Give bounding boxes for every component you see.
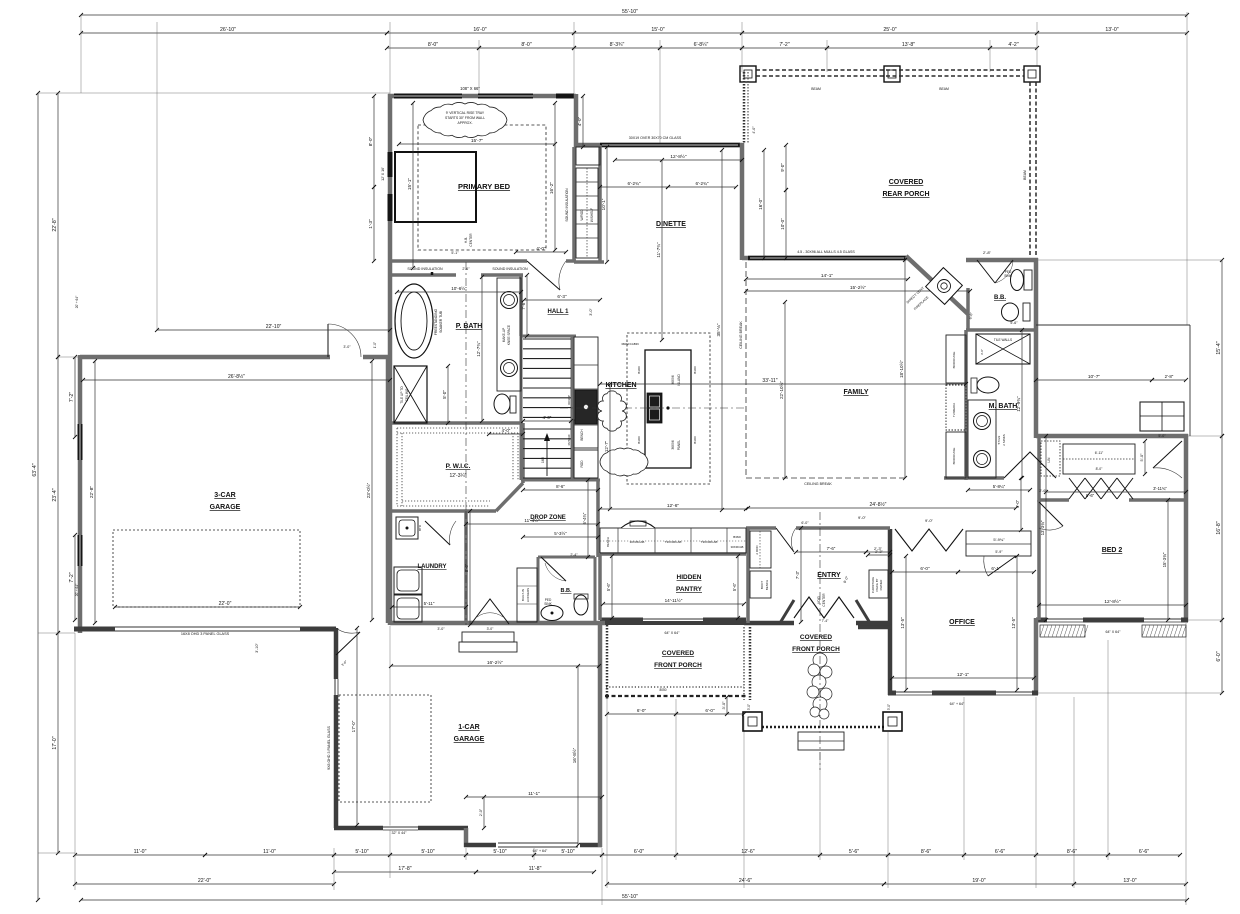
svg-text:PANTRY: PANTRY <box>676 586 703 593</box>
svg-text:6'-0": 6'-0" <box>705 708 715 713</box>
svg-text:10'-0": 10'-0" <box>780 218 785 230</box>
svg-text:33'-11": 33'-11" <box>762 378 777 384</box>
svg-text:4'-0": 4'-0" <box>536 246 546 252</box>
svg-text:64" + 64": 64" + 64" <box>950 702 965 706</box>
svg-text:TILE UP TO: TILE UP TO <box>400 386 404 404</box>
svg-text:VOID: VOID <box>817 595 821 603</box>
svg-text:5'-10": 5'-10" <box>561 849 574 855</box>
svg-text:5'-3½": 5'-3½" <box>554 531 567 536</box>
svg-text:15'-3¾": 15'-3¾" <box>1162 552 1167 567</box>
svg-text:8'-6": 8'-6" <box>1067 849 1077 855</box>
svg-text:24'-8½": 24'-8½" <box>870 501 887 508</box>
svg-text:8'-3¾": 8'-3¾" <box>610 42 625 48</box>
svg-text:3'-0": 3'-0" <box>343 345 351 349</box>
svg-text:3'-0": 3'-0" <box>721 701 726 710</box>
svg-text:W/ROD: W/ROD <box>580 209 584 221</box>
svg-text:3'-0": 3'-0" <box>887 704 891 710</box>
svg-text:CEILING: CEILING <box>405 388 409 401</box>
svg-text:15'-4": 15'-4" <box>1216 341 1222 354</box>
svg-text:12'-3¼": 12'-3¼" <box>450 473 467 479</box>
svg-text:9'-0": 9'-0" <box>780 163 785 172</box>
svg-text:PRIMARY BED: PRIMARY BED <box>458 182 511 191</box>
svg-text:4'-0": 4'-0" <box>502 428 511 433</box>
svg-text:8'-0": 8'-0" <box>428 42 438 48</box>
svg-text:4'-2": 4'-2" <box>1008 42 1018 48</box>
svg-text:12'-8½": 12'-8½" <box>1104 598 1121 605</box>
svg-text:26'-8½": 26'-8½" <box>228 373 245 380</box>
svg-text:17'-8": 17'-8" <box>398 866 411 872</box>
svg-text:ROD: ROD <box>580 460 584 468</box>
svg-text:12' X 16': 12' X 16' <box>381 167 385 181</box>
svg-text:4'-0": 4'-0" <box>752 126 756 134</box>
svg-text:8050: 8050 <box>659 688 666 692</box>
svg-text:16'-2": 16'-2" <box>549 182 555 195</box>
svg-text:SOUND INSULATION: SOUND INSULATION <box>492 267 528 271</box>
svg-text:23'-4": 23'-4" <box>52 488 58 501</box>
svg-text:23'-0½": 23'-0½" <box>365 482 371 498</box>
svg-text:6'-6": 6'-6" <box>995 849 1005 855</box>
svg-text:2 SINKS: 2 SINKS <box>1002 434 1006 446</box>
svg-text:6'-0": 6'-0" <box>1216 651 1222 661</box>
svg-text:8'-6": 8'-6" <box>921 849 931 855</box>
svg-text:10'-7": 10'-7" <box>1088 374 1101 380</box>
svg-text:6'-6": 6'-6" <box>1139 849 1149 855</box>
svg-text:20' + 64": 20' + 64" <box>75 296 79 308</box>
svg-text:6'-4¾": 6'-4¾" <box>582 512 587 524</box>
svg-text:64" X 64": 64" X 64" <box>665 631 681 635</box>
svg-text:SOAKER TUB: SOAKER TUB <box>439 310 443 333</box>
svg-text:64" X 64": 64" X 64" <box>1106 630 1122 634</box>
svg-text:B30D: B30D <box>693 365 697 373</box>
svg-text:FRONT PORCH: FRONT PORCH <box>792 646 840 653</box>
svg-text:22'-10": 22'-10" <box>266 324 282 330</box>
svg-text:FRONT PORCH: FRONT PORCH <box>654 662 702 669</box>
svg-text:OWNER: OWNER <box>879 580 883 591</box>
svg-text:5'-10": 5'-10" <box>421 849 434 855</box>
svg-text:17'-0": 17'-0" <box>52 736 58 749</box>
svg-text:24'-6": 24'-6" <box>739 878 752 884</box>
svg-text:M. BATH: M. BATH <box>989 403 1018 410</box>
svg-text:3-CAR: 3-CAR <box>214 492 235 499</box>
svg-text:16R: 16R <box>541 456 545 463</box>
svg-text:GARAGE: GARAGE <box>454 736 485 743</box>
svg-text:B30D: B30D <box>637 365 641 373</box>
svg-text:BOOKCASE: BOOKCASE <box>952 448 956 465</box>
svg-text:T36X36CAB: T36X36CAB <box>665 540 682 544</box>
svg-text:9X8 OHD 3 PANEL GLASS: 9X8 OHD 3 PANEL GLASS <box>327 726 331 770</box>
svg-text:3'-0": 3'-0" <box>980 349 984 355</box>
svg-text:14'-11½": 14'-11½" <box>665 597 683 603</box>
svg-text:11'-8": 11'-8" <box>529 866 542 872</box>
svg-text:1'-3": 1'-3" <box>368 219 374 229</box>
svg-text:25'-0": 25'-0" <box>883 27 896 33</box>
svg-text:8'-6": 8'-6" <box>464 563 469 572</box>
svg-text:RV6030: RV6030 <box>567 434 571 445</box>
svg-text:1'-0": 1'-0" <box>373 342 377 348</box>
svg-text:15'-7": 15'-7" <box>471 138 484 144</box>
svg-text:B30D: B30D <box>693 435 697 443</box>
svg-text:64" + 64": 64" + 64" <box>533 849 548 853</box>
svg-text:6'-0": 6'-0" <box>634 849 644 855</box>
svg-text:5'-0": 5'-0" <box>1139 453 1144 462</box>
svg-text:3'-11¾": 3'-11¾" <box>1153 486 1167 491</box>
svg-text:55'-10": 55'-10" <box>622 894 638 900</box>
svg-text:GARAGE: GARAGE <box>210 504 241 511</box>
svg-text:STARTS 30" FROM WALL: STARTS 30" FROM WALL <box>445 116 485 120</box>
svg-text:108" X 66": 108" X 66" <box>460 86 480 91</box>
svg-text:6'-3": 6'-3" <box>557 294 567 299</box>
svg-text:6'-2¾": 6'-2¾" <box>696 181 709 186</box>
svg-text:BEAM: BEAM <box>939 87 949 91</box>
svg-text:APPROX.: APPROX. <box>457 121 472 125</box>
svg-text:7'-2": 7'-2" <box>69 572 75 582</box>
svg-text:55'-10": 55'-10" <box>622 9 638 15</box>
svg-text:13'-5": 13'-5" <box>900 617 905 629</box>
svg-text:BENCH: BENCH <box>606 537 610 547</box>
svg-text:10'-6½": 10'-6½" <box>451 285 467 291</box>
svg-text:6'-8¼": 6'-8¼" <box>694 42 709 48</box>
svg-text:BTD: BTD <box>418 524 422 531</box>
svg-text:BOOKCASE: BOOKCASE <box>952 352 956 369</box>
svg-text:6'-1": 6'-1" <box>991 566 1001 571</box>
svg-text:12'-1": 12'-1" <box>957 672 970 678</box>
svg-text:12'-8½": 12'-8½" <box>670 153 687 160</box>
svg-text:1-CAR: 1-CAR <box>458 724 479 731</box>
svg-text:2'-8": 2'-8" <box>1165 374 1174 379</box>
svg-text:HIDDEN: HIDDEN <box>677 574 702 581</box>
svg-text:8'-6": 8'-6" <box>1086 493 1095 498</box>
svg-text:16'-2½": 16'-2½" <box>487 659 504 666</box>
svg-text:20' + 64": 20' + 64" <box>75 584 79 596</box>
svg-text:6'-11": 6'-11" <box>1095 451 1104 455</box>
svg-text:8'-0": 8'-0" <box>368 136 374 146</box>
svg-text:5'-0": 5'-0" <box>1158 434 1166 438</box>
svg-text:P. W.I.C.: P. W.I.C. <box>446 463 471 470</box>
svg-text:8'-0": 8'-0" <box>521 42 531 48</box>
svg-text:PANEL: PANEL <box>677 440 681 450</box>
svg-text:30X36CAB: 30X36CAB <box>731 545 744 549</box>
svg-text:3'-0": 3'-0" <box>589 308 593 316</box>
svg-text:63'-4": 63'-4" <box>32 463 38 476</box>
svg-text:11'-1": 11'-1" <box>528 791 540 797</box>
svg-text:4.5 - 30X96 ALL MULLS 4.5 GLAS: 4.5 - 30X96 ALL MULLS 4.5 GLASS <box>797 250 855 254</box>
svg-text:6'-0": 6'-0" <box>801 521 809 525</box>
svg-text:B.B.: B.B. <box>561 588 572 594</box>
svg-text:5'-8¼": 5'-8¼" <box>993 484 1006 489</box>
svg-text:16'-0": 16'-0" <box>758 198 763 210</box>
svg-text:3'-10": 3'-10" <box>255 643 259 653</box>
svg-text:13'-5": 13'-5" <box>1011 617 1016 629</box>
svg-text:KNEE SPACE: KNEE SPACE <box>507 325 511 345</box>
svg-text:W/SHELF: W/SHELF <box>590 208 594 222</box>
svg-text:9' VERTICAL RISE TRAY: 9' VERTICAL RISE TRAY <box>446 111 485 115</box>
svg-text:18'-10½": 18'-10½" <box>898 360 904 378</box>
svg-text:KD30P: KD30P <box>567 395 571 405</box>
svg-text:7'-2": 7'-2" <box>69 392 75 402</box>
svg-text:22'-0": 22'-0" <box>198 878 211 884</box>
svg-text:COVERED: COVERED <box>889 179 924 186</box>
svg-text:B36D: B36D <box>733 535 741 539</box>
svg-text:LIN: LIN <box>1047 457 1051 463</box>
svg-text:30X19 OVER 30X70 CM GLASS: 30X19 OVER 30X70 CM GLASS <box>629 136 682 140</box>
svg-text:B30D: B30D <box>637 435 641 443</box>
svg-text:5'-0": 5'-0" <box>442 390 447 399</box>
svg-text:2 ROD: 2 ROD <box>755 545 759 555</box>
svg-text:FREESTANDING: FREESTANDING <box>434 308 438 335</box>
svg-text:5'-10": 5'-10" <box>493 849 506 855</box>
svg-text:10'-1": 10'-1" <box>601 198 606 210</box>
svg-text:2'-8": 2'-8" <box>983 250 992 255</box>
svg-text:5'-6": 5'-6" <box>849 849 859 855</box>
svg-text:15'-1": 15'-1" <box>407 178 413 191</box>
svg-text:DINETTE: DINETTE <box>656 221 686 228</box>
svg-text:9'-0": 9'-0" <box>925 518 934 523</box>
svg-text:22'-0": 22'-0" <box>219 601 232 607</box>
svg-text:5'-1": 5'-1" <box>451 251 459 255</box>
svg-text:16'-0": 16'-0" <box>473 27 486 33</box>
svg-text:ENTRY: ENTRY <box>817 572 841 579</box>
svg-text:OFFICE: OFFICE <box>949 619 975 626</box>
svg-text:MAKE-UP: MAKE-UP <box>502 328 506 343</box>
svg-text:13'-0": 13'-0" <box>1123 878 1136 884</box>
svg-text:CENTER: CENTER <box>469 233 473 247</box>
svg-text:2'-4": 2'-4" <box>570 553 578 557</box>
svg-text:CEILING BREAK: CEILING BREAK <box>804 482 832 486</box>
svg-text:2'-6": 2'-6" <box>462 267 470 271</box>
svg-text:BENCH: BENCH <box>580 429 584 441</box>
svg-text:P. BATH: P. BATH <box>456 323 483 330</box>
svg-text:4'-0": 4'-0" <box>543 415 552 420</box>
svg-text:COVERED: COVERED <box>662 650 694 657</box>
svg-text:12'-6": 12'-6" <box>667 503 680 509</box>
svg-text:BENCH: BENCH <box>765 580 769 591</box>
svg-text:15'-2½": 15'-2½" <box>850 284 867 291</box>
svg-text:B.B.: B.B. <box>994 295 1006 301</box>
svg-text:12'-6": 12'-6" <box>741 849 754 855</box>
svg-text:36X96: 36X96 <box>671 375 675 384</box>
svg-text:7'-6": 7'-6" <box>521 301 526 310</box>
svg-text:H.B.: H.B. <box>464 237 468 243</box>
svg-text:9'-0": 9'-0" <box>858 515 867 520</box>
svg-text:13'-0": 13'-0" <box>1105 27 1118 33</box>
svg-text:11'-0": 11'-0" <box>263 849 276 855</box>
svg-text:COVERED: COVERED <box>800 634 832 641</box>
svg-text:5'-10": 5'-10" <box>355 849 368 855</box>
svg-text:5'-9¾": 5'-9¾" <box>993 537 1005 542</box>
svg-text:TV/MEDIA: TV/MEDIA <box>952 403 956 417</box>
svg-text:11'-7¾": 11'-7¾" <box>656 242 661 258</box>
svg-text:REAR PORCH: REAR PORCH <box>882 191 929 198</box>
svg-text:3'-0": 3'-0" <box>487 627 495 631</box>
svg-text:CENTER: CENTER <box>822 593 826 607</box>
svg-text:11'-4½": 11'-4½" <box>524 517 540 523</box>
svg-text:5'-11": 5'-11" <box>424 601 435 606</box>
svg-text:8'-6": 8'-6" <box>556 484 565 489</box>
svg-text:HALL 1: HALL 1 <box>548 309 570 315</box>
svg-text:T36X36CAB: T36X36CAB <box>701 540 718 544</box>
svg-text:16'-8½": 16'-8½" <box>571 747 577 763</box>
svg-text:SINK: SINK <box>544 602 552 606</box>
svg-text:22'-10½": 22'-10½" <box>778 381 784 399</box>
svg-text:13'-3¾": 13'-3¾" <box>1040 520 1045 535</box>
svg-text:3'-0": 3'-0" <box>437 627 445 631</box>
svg-text:11'-0": 11'-0" <box>134 849 147 855</box>
svg-text:12'-7": 12'-7" <box>604 440 609 452</box>
svg-text:5'-6": 5'-6" <box>606 582 611 591</box>
svg-text:5'-6": 5'-6" <box>1010 321 1018 325</box>
svg-text:16'-8": 16'-8" <box>1216 521 1222 534</box>
svg-text:2'-3": 2'-3" <box>875 550 883 554</box>
svg-text:16X8 OHD 3 PANEL GLASS: 16X8 OHD 3 PANEL GLASS <box>181 632 230 636</box>
svg-text:4'-0": 4'-0" <box>577 116 583 126</box>
svg-text:30X36CAB: 30X36CAB <box>630 540 645 544</box>
svg-text:14'-1": 14'-1" <box>821 273 834 279</box>
svg-text:13'-8": 13'-8" <box>902 42 915 48</box>
svg-text:6'-0": 6'-0" <box>920 566 930 571</box>
svg-text:2'-0": 2'-0" <box>479 808 483 816</box>
svg-text:26'-10": 26'-10" <box>220 27 236 33</box>
svg-text:17'-0": 17'-0" <box>351 720 356 732</box>
svg-text:FAMILY: FAMILY <box>843 389 868 396</box>
svg-text:3'-0": 3'-0" <box>747 704 751 710</box>
svg-text:57X22: 57X22 <box>997 435 1001 444</box>
svg-text:BEAM: BEAM <box>811 87 821 91</box>
svg-text:BUILT-IN: BUILT-IN <box>521 589 525 601</box>
svg-text:TILE WALLS: TILE WALLS <box>994 338 1012 342</box>
svg-text:5'-9": 5'-9" <box>995 550 1003 554</box>
svg-text:35'-⅛": 35'-⅛" <box>716 323 721 336</box>
svg-text:19'-0": 19'-0" <box>972 878 985 884</box>
svg-text:6'-0": 6'-0" <box>637 708 647 713</box>
svg-text:36REFCAB36: 36REFCAB36 <box>621 342 639 346</box>
svg-text:15'-0": 15'-0" <box>651 27 664 33</box>
svg-text:12'-7¾": 12'-7¾" <box>476 341 481 357</box>
svg-text:BOOT: BOOT <box>760 581 764 590</box>
svg-text:SOUND INSULATION: SOUND INSULATION <box>407 267 443 271</box>
svg-text:22'-8": 22'-8" <box>52 218 58 231</box>
svg-text:CEILING BREAK: CEILING BREAK <box>739 321 743 349</box>
svg-text:7'-2": 7'-2" <box>779 42 789 48</box>
svg-text:5'-6": 5'-6" <box>732 582 737 591</box>
svg-text:36X96: 36X96 <box>671 440 675 449</box>
svg-text:8'-0": 8'-0" <box>1096 467 1104 471</box>
svg-text:12'-9¾": 12'-9¾" <box>1016 396 1021 412</box>
svg-text:LOCKERS: LOCKERS <box>526 588 530 602</box>
svg-text:6'-2¾": 6'-2¾" <box>628 181 641 186</box>
svg-text:BED 2: BED 2 <box>1102 547 1123 554</box>
svg-text:7'-3": 7'-3" <box>795 570 800 579</box>
svg-text:7'-4": 7'-4" <box>822 619 830 623</box>
svg-text:22'-8": 22'-8" <box>89 486 95 499</box>
svg-text:32" X 44": 32" X 44" <box>392 831 408 835</box>
svg-text:7'-6": 7'-6" <box>827 546 836 551</box>
svg-text:SOUND INSULATION: SOUND INSULATION <box>565 188 569 222</box>
svg-text:BEAM: BEAM <box>1023 170 1027 180</box>
